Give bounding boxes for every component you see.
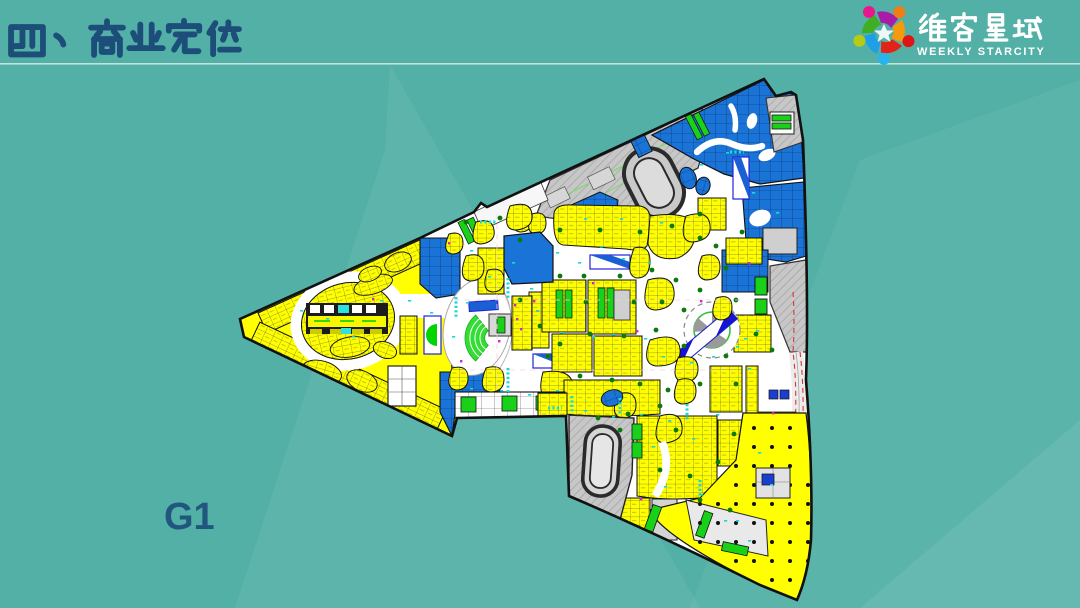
svg-text:WEEKLY STARCITY: WEEKLY STARCITY (917, 46, 1046, 58)
svg-text:G1: G1 (164, 496, 215, 538)
